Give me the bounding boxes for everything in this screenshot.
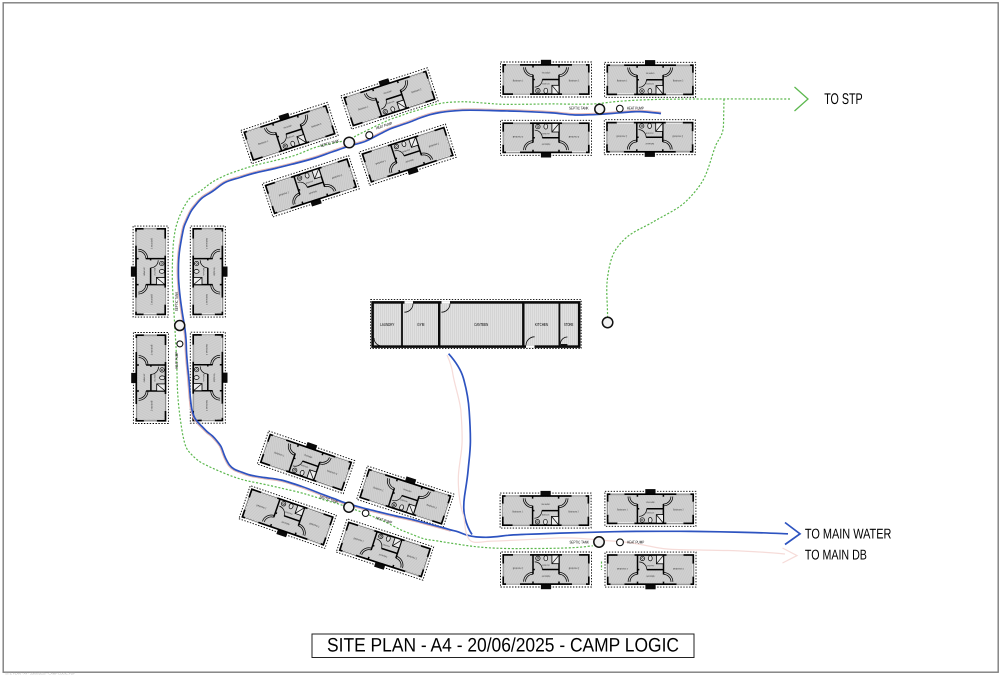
svg-text:SITE PLAN - A4 - 20/06/2025 -: SITE PLAN - A4 - 20/06/2025 - CAMP LOGIC xyxy=(327,635,679,657)
svg-text:SEPTIC TANK: SEPTIC TANK xyxy=(569,540,589,545)
svg-text:LAUNDRY: LAUNDRY xyxy=(380,322,394,327)
svg-text:TO MAIN WATER: TO MAIN WATER xyxy=(805,527,892,543)
svg-text:SEPTIC TANK: SEPTIC TANK xyxy=(569,106,589,111)
svg-text:HEAT PUMP: HEAT PUMP xyxy=(174,351,179,368)
svg-text:GYM: GYM xyxy=(417,322,424,327)
svg-text:SEPTIC TANK: SEPTIC TANK xyxy=(174,292,179,312)
svg-text:STORE: STORE xyxy=(564,322,574,327)
svg-text:TO MAIN DB: TO MAIN DB xyxy=(805,548,867,564)
svg-text:TO STP: TO STP xyxy=(824,91,863,108)
svg-text:CANTEEN: CANTEEN xyxy=(474,322,488,327)
svg-text:HEAT PUMP: HEAT PUMP xyxy=(627,539,644,544)
svg-text:KITCHEN: KITCHEN xyxy=(535,322,548,327)
svg-text:HEAT PUMP: HEAT PUMP xyxy=(627,106,644,111)
